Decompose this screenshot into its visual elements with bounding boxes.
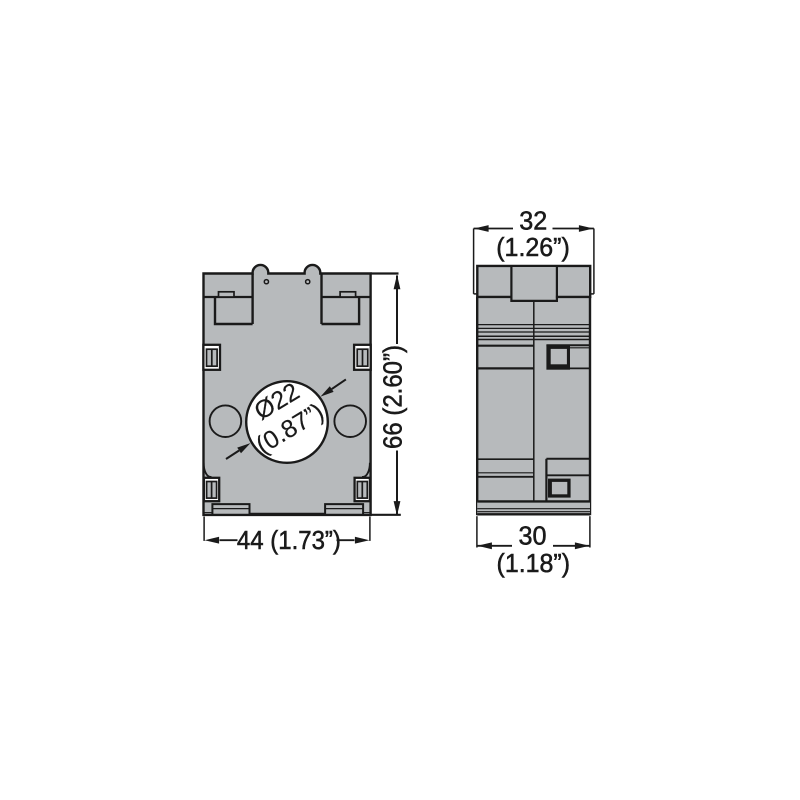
svg-text:44 (1.73”): 44 (1.73”) [237,527,341,555]
svg-text:30: 30 [519,520,547,550]
svg-text:(1.18”): (1.18”) [497,548,571,578]
svg-text:(1.26”): (1.26”) [496,232,570,262]
svg-text:66 (2.60”): 66 (2.60”) [380,345,408,449]
